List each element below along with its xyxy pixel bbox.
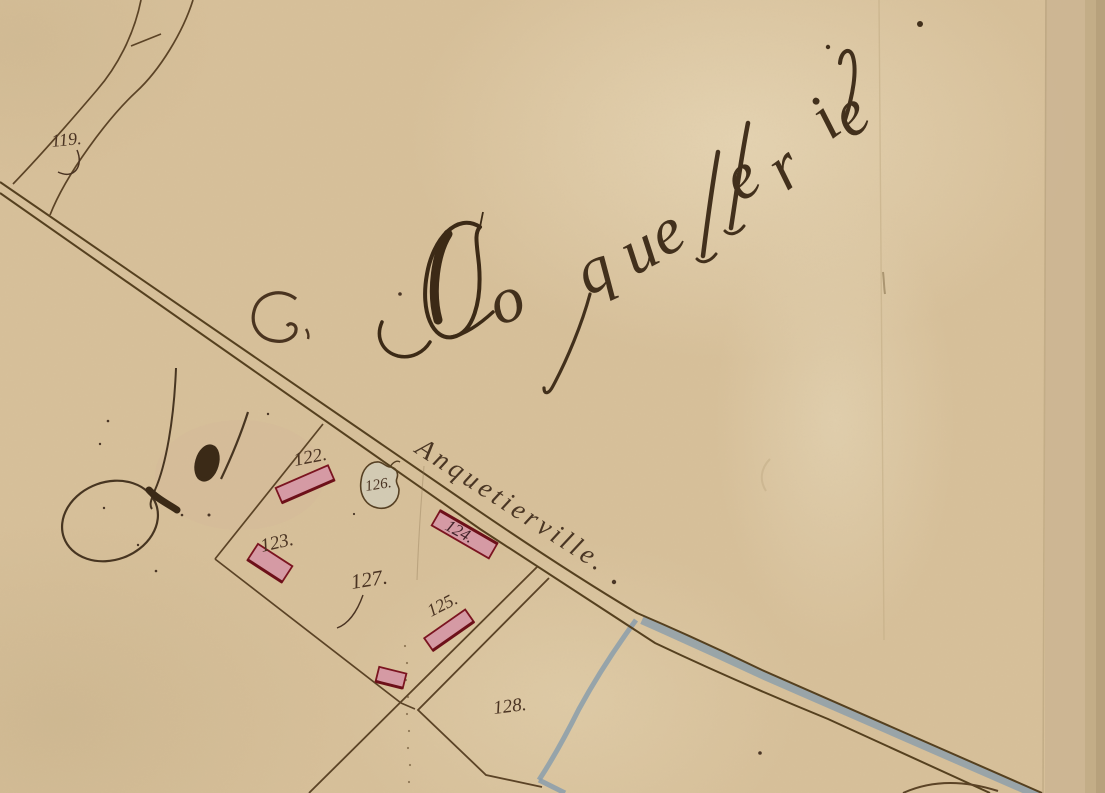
svg-text:119.: 119.: [50, 128, 82, 151]
svg-text:128.: 128.: [492, 694, 528, 719]
